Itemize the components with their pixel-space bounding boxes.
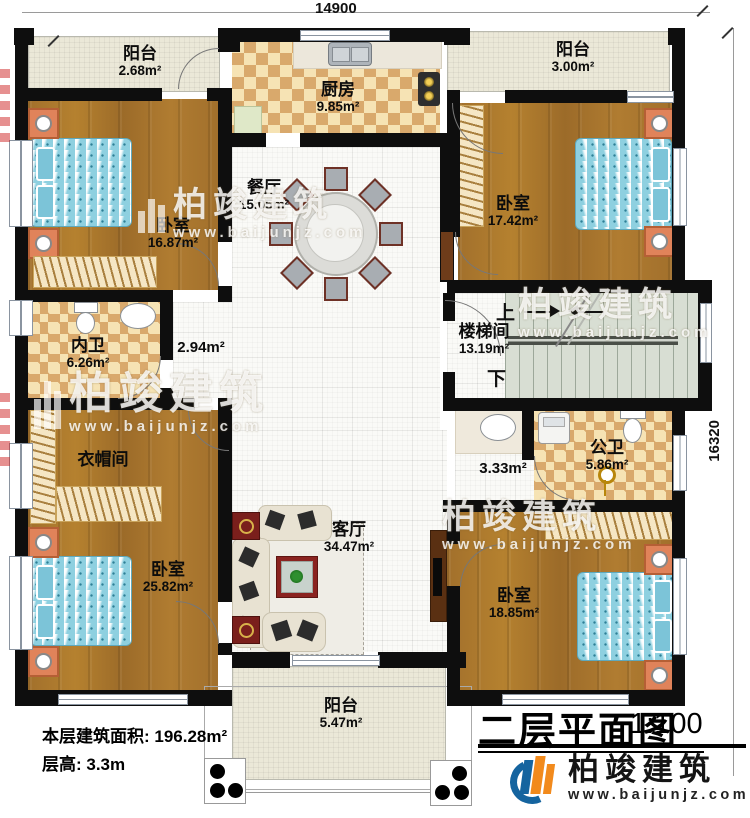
wall [443, 500, 677, 512]
dimension-tick [696, 5, 708, 17]
room-label-balcony-top-left: 阳台 2.68m² [119, 44, 162, 78]
room-name: 阳台 [320, 696, 363, 715]
washing-machine [538, 412, 570, 444]
wall [444, 28, 470, 45]
room-area: 34.47m² [324, 539, 374, 554]
wardrobe [545, 508, 677, 540]
wall [232, 652, 290, 668]
nightstand [644, 544, 675, 575]
dining-chair [324, 167, 348, 191]
stair-down-label: 下 [487, 364, 506, 391]
wall [15, 398, 195, 410]
room-name: 卧室 [488, 194, 538, 213]
side-table [232, 512, 260, 540]
room-area: 17.42m² [488, 213, 538, 228]
wardrobe [30, 410, 56, 524]
floor-plan: 14900 16320 [0, 0, 750, 818]
burner [424, 77, 434, 87]
kitchen-sink [328, 42, 372, 66]
burner [424, 91, 434, 101]
room-name: 内卫 [67, 336, 110, 355]
room-name: 客厅 [324, 520, 374, 539]
dimension-right-value: 16320 [706, 420, 723, 462]
dining-chair [379, 222, 403, 246]
room-area: 18.85m² [489, 605, 539, 620]
sink-basin [351, 47, 369, 62]
nightstand [28, 228, 59, 259]
light-pull-cord [604, 480, 606, 496]
room-label-kitchen: 厨房 9.85m² [317, 80, 360, 114]
wall [14, 28, 34, 45]
room-label-bedroom-bottom-left: 卧室 25.82m² [143, 560, 193, 594]
wall [447, 586, 460, 690]
room-label-bedroom-top-right: 卧室 17.42m² [488, 194, 538, 228]
room-label-living: 客厅 34.47m² [324, 520, 374, 554]
nightstand [644, 660, 675, 691]
room-label-stairwell: 楼梯间 13.19m² [459, 322, 510, 356]
room-label-bedroom-top-left: 卧室 16.87m² [148, 216, 198, 250]
wall [160, 302, 173, 360]
room-name: 卧室 [148, 216, 198, 235]
chaise [262, 612, 326, 652]
stair-direction-line [578, 311, 604, 313]
room-label-bath-public: 公卫 5.86m² [586, 438, 629, 472]
window [300, 30, 390, 41]
company-url: www.baijunjz.com [568, 785, 749, 807]
watermark-edge-fragment [0, 390, 10, 466]
arrow-right-icon [550, 305, 560, 317]
wall [522, 410, 534, 460]
window [700, 303, 712, 363]
window [673, 558, 687, 655]
sink-basin [332, 47, 350, 62]
note-floor-area: 本层建筑面积: 196.28m² [42, 722, 227, 747]
nightstand [28, 646, 59, 677]
room-area: 2.68m² [119, 63, 162, 78]
room-label-cloakroom: 衣帽间 [78, 450, 129, 469]
dimension-top-value: 14900 [315, 0, 357, 17]
window [9, 300, 33, 336]
stair-up-label: 上 [496, 298, 515, 325]
room-name: 卧室 [489, 586, 539, 605]
wardrobe [33, 256, 157, 288]
dining-table-top [306, 204, 364, 262]
room-area: 9.85m² [317, 99, 360, 114]
room-area: 3.00m² [552, 59, 595, 74]
washbasin [120, 303, 156, 329]
nightstand [28, 108, 59, 139]
dimension-line-top [22, 12, 710, 13]
room-name: 餐厅 [239, 178, 289, 197]
room-area: 25.82m² [143, 579, 193, 594]
room-label-dining: 餐厅 15.05m² [239, 178, 289, 212]
room-area: 3.33m² [479, 461, 527, 478]
wall [15, 88, 162, 101]
window [673, 435, 687, 491]
window [9, 556, 33, 650]
window [58, 694, 188, 705]
room-label-hall-left: 2.94m² [177, 340, 225, 357]
wall [218, 28, 240, 52]
room-name: 卧室 [143, 560, 193, 579]
stair-direction-line [524, 311, 550, 313]
note-floor-height: 层高: 3.3m [42, 750, 125, 775]
coffee-table [276, 556, 318, 598]
arrow-left-icon [568, 305, 578, 317]
company-name: 柏竣建筑 [568, 754, 749, 785]
room-name: 阳台 [552, 40, 595, 59]
toilet [74, 302, 96, 334]
tv [433, 558, 442, 596]
bed [577, 572, 674, 661]
room-name: 楼梯间 [459, 322, 510, 341]
room-area: 13.19m² [459, 341, 510, 356]
wall [443, 372, 455, 398]
room-area: 6.26m² [67, 355, 110, 370]
nightstand [644, 108, 675, 139]
side-table [232, 616, 260, 644]
balcony-column [430, 760, 472, 806]
room-label-bedroom-bottom-right: 卧室 18.85m² [489, 586, 539, 620]
plan-scale: 1:100 [630, 708, 703, 741]
room-label-bath-inner: 内卫 6.26m² [67, 336, 110, 370]
wall [447, 280, 712, 293]
dining-chair [269, 222, 293, 246]
room-label-balcony-top-right: 阳台 3.00m² [552, 40, 595, 74]
room-name: 厨房 [317, 80, 360, 99]
room-area: 15.05m² [239, 197, 289, 212]
watermark-edge-fragment [0, 62, 10, 142]
room-label-balcony-bottom: 阳台 5.47m² [320, 696, 363, 730]
wall [15, 290, 173, 302]
sliding-door [292, 655, 380, 666]
bed [30, 556, 132, 646]
room-area: 16.87m² [148, 235, 198, 250]
wall [300, 133, 447, 147]
stove [418, 72, 440, 106]
door-panel [441, 232, 453, 280]
nightstand [644, 226, 675, 257]
wall [218, 88, 232, 242]
wardrobe [56, 486, 162, 522]
nightstand [28, 527, 59, 558]
stair-handrail [508, 336, 678, 345]
wall [218, 643, 232, 655]
kitchen-cabinet [234, 106, 262, 134]
room-area: 2.94m² [177, 340, 225, 357]
wall [447, 90, 460, 103]
wall [447, 512, 460, 544]
room-name: 衣帽间 [78, 450, 129, 469]
washbasin [480, 414, 516, 441]
room-label-hall-right: 3.33m² [479, 461, 527, 478]
company-logo: 柏竣建筑 www.baijunjz.com [508, 754, 749, 807]
wall [218, 133, 266, 147]
wall [218, 286, 232, 302]
sofa [258, 505, 332, 541]
balcony-column [204, 758, 246, 804]
window [9, 443, 33, 509]
bed [30, 138, 132, 227]
company-logo-icon [508, 754, 560, 806]
wall [505, 90, 627, 103]
bed [575, 138, 672, 230]
window [673, 148, 687, 226]
dining-chair [324, 277, 348, 301]
dimension-line-right [733, 28, 734, 776]
window [627, 91, 674, 103]
room-area: 5.86m² [586, 457, 629, 472]
room-name: 阳台 [119, 44, 162, 63]
dimension-tick [721, 27, 733, 39]
room-name: 公卫 [586, 438, 629, 457]
title-underline [478, 744, 746, 748]
window [9, 140, 33, 227]
room-area: 5.47m² [320, 715, 363, 730]
